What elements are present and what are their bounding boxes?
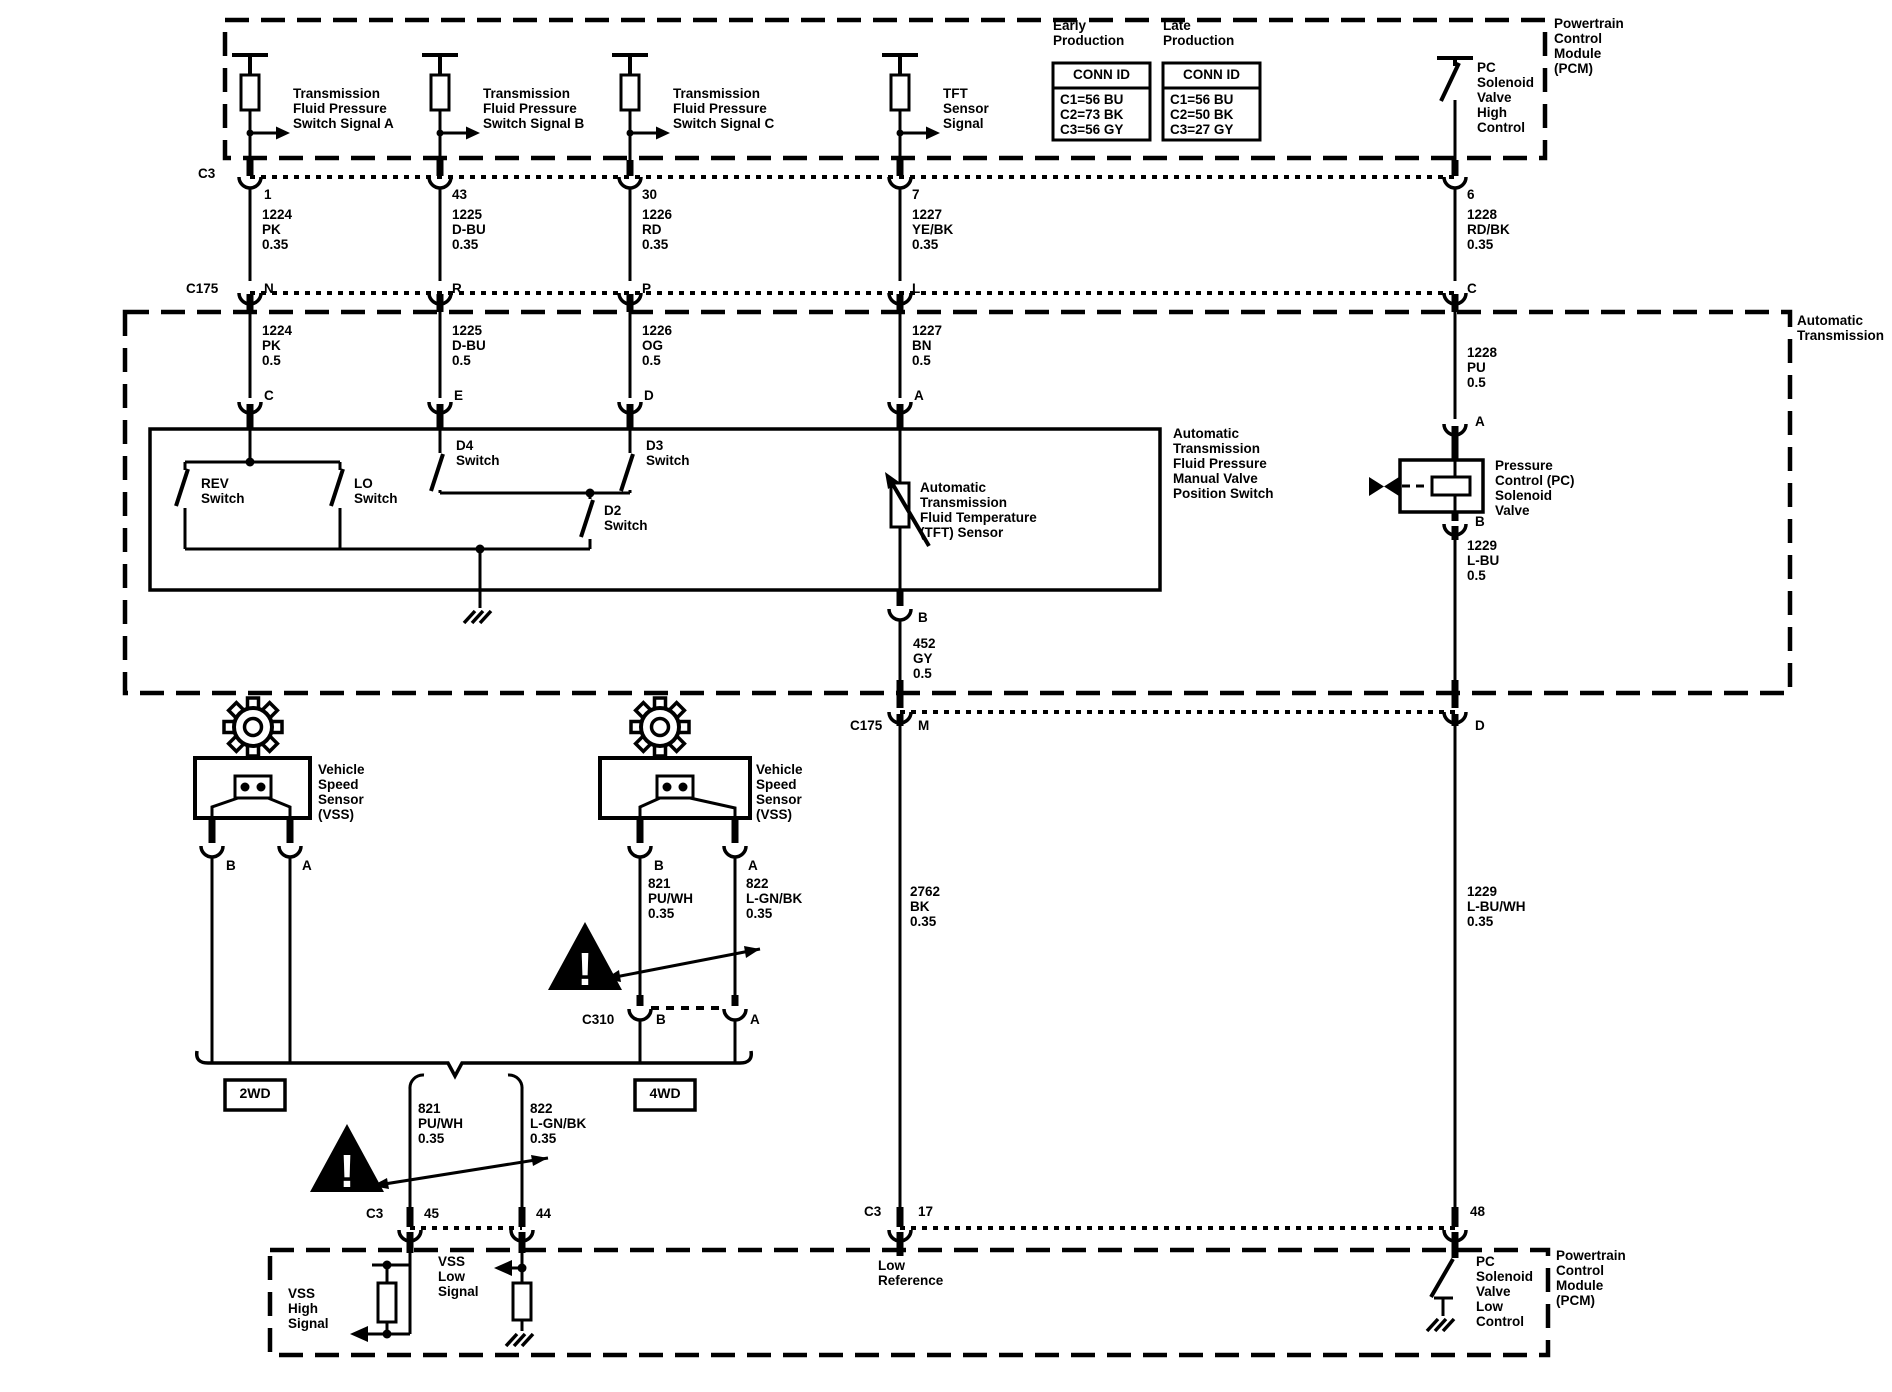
pin-6: 6 xyxy=(1467,187,1475,202)
pin-30: 30 xyxy=(642,187,657,202)
wire-1228-05: 1228 PU 0.5 xyxy=(1467,345,1497,390)
early-production-label: Early Production xyxy=(1053,18,1124,48)
wire-1227-05: 1227 BN 0.5 xyxy=(912,323,942,368)
vss-left-pin-a: A xyxy=(302,858,312,873)
resistor-icon xyxy=(513,1283,531,1320)
pin-l: L xyxy=(912,281,920,296)
automatic-transmission-label: Automatic Transmission xyxy=(1797,313,1884,343)
wire-821-lower: 821 PU/WH 0.35 xyxy=(418,1101,463,1146)
pcm-top-label: Powertrain Control Module (PCM) xyxy=(1554,16,1624,76)
pin-7: 7 xyxy=(912,187,920,202)
pin-44: 44 xyxy=(536,1206,551,1221)
pc-high-switch-blade xyxy=(1441,63,1459,101)
wire-821-upper: 821 PU/WH 0.35 xyxy=(648,876,693,921)
vss-high-signal-label: VSS High Signal xyxy=(288,1286,329,1331)
low-reference-label: Low Reference xyxy=(878,1258,943,1288)
vss-left-pin-b: B xyxy=(226,858,236,873)
pin-m: M xyxy=(918,718,929,733)
component-boxes xyxy=(125,20,1790,1355)
vss-left-label: Vehicle Speed Sensor (VSS) xyxy=(318,762,365,822)
wires xyxy=(185,100,1467,1334)
resistor-icon xyxy=(621,75,639,110)
pin-a-switch: A xyxy=(914,388,924,403)
wire-452: 452 GY 0.5 xyxy=(913,636,936,681)
pin-45: 45 xyxy=(424,1206,439,1221)
pin-r: R xyxy=(452,281,462,296)
switch-blades xyxy=(176,58,1473,1297)
vss-right-pin-b: B xyxy=(654,858,664,873)
pin-1: 1 xyxy=(264,187,272,202)
wire-1226-035: 1226 RD 0.35 xyxy=(642,207,672,252)
pin-n: N xyxy=(264,281,274,296)
solenoid-coil-icon xyxy=(1432,477,1470,495)
gear-icon xyxy=(631,698,689,756)
resistor-icon xyxy=(241,75,259,110)
connector-c175-name: C175 xyxy=(186,281,218,296)
rev-switch-blade xyxy=(176,469,188,506)
2wd-label: 2WD xyxy=(225,1086,285,1101)
d2-switch-blade xyxy=(581,500,593,537)
warning-icon: ! xyxy=(310,1124,384,1197)
d3-switch-label: D3 Switch xyxy=(646,438,690,468)
connector-cups xyxy=(201,177,1466,1241)
wire-2762: 2762 BK 0.35 xyxy=(910,884,940,929)
connector-c175-2-name: C175 xyxy=(850,718,882,733)
warning-exclamation: ! xyxy=(577,943,592,995)
lo-switch-blade xyxy=(331,469,343,506)
vss-coil-icons xyxy=(235,776,693,798)
signal-c-label: Transmission Fluid Pressure Switch Signa… xyxy=(673,86,774,131)
terminal-stubs xyxy=(212,160,1455,1258)
resistor-top-bars xyxy=(232,55,918,75)
wire-1227-035: 1227 YE/BK 0.35 xyxy=(912,207,953,252)
ground-icon xyxy=(464,611,491,623)
vss-low-signal-label: VSS Low Signal xyxy=(438,1254,479,1299)
valve-bowtie-icon xyxy=(1369,477,1399,496)
wire-1229-035: 1229 L-BU/WH 0.35 xyxy=(1467,884,1525,929)
pc-valve-pin-b: B xyxy=(1475,514,1485,529)
wire-822-upper: 822 L-GN/BK 0.35 xyxy=(746,876,802,921)
signal-b-label: Transmission Fluid Pressure Switch Signa… xyxy=(483,86,584,131)
resistor-icon xyxy=(891,75,909,110)
ground-icon xyxy=(506,1334,533,1346)
vss-right-pin-a: A xyxy=(748,858,758,873)
warning-icon: ! xyxy=(548,922,622,995)
pc-low-switch-blade xyxy=(1431,1259,1453,1297)
connector-lines xyxy=(250,177,1455,1228)
pc-solenoid-high-label: PC Solenoid Valve High Control xyxy=(1477,60,1534,135)
gear-icon xyxy=(224,698,282,756)
wiring-diagram: ! ! Transmission Fluid Pressure Switch S… xyxy=(0,0,1892,1392)
pcm-bottom-arrows xyxy=(350,1260,512,1342)
connector-c3-top-name: C3 xyxy=(198,166,215,181)
d4-switch-label: D4 Switch xyxy=(456,438,500,468)
rev-switch-label: REV Switch xyxy=(201,476,245,506)
connector-c3-bottom-right-name: C3 xyxy=(864,1204,881,1219)
late-production-label: Late Production xyxy=(1163,18,1234,48)
wire-1224-035: 1224 PK 0.35 xyxy=(262,207,292,252)
pin-43: 43 xyxy=(452,187,467,202)
wire-1226-05: 1226 OG 0.5 xyxy=(642,323,672,368)
pc-valve-label: Pressure Control (PC) Solenoid Valve xyxy=(1495,458,1574,518)
late-conn-id-header: CONN ID xyxy=(1163,67,1260,82)
d2-switch-label: D2 Switch xyxy=(604,503,648,533)
wire-822-lower: 822 L-GN/BK 0.35 xyxy=(530,1101,586,1146)
pc-solenoid-low-label: PC Solenoid Valve Low Control xyxy=(1476,1254,1533,1329)
ground-icon xyxy=(1427,1319,1454,1331)
d3-switch-blade xyxy=(621,454,633,491)
c310-pin-b: B xyxy=(656,1012,666,1027)
connector-c3-bottom-left-name: C3 xyxy=(366,1206,383,1221)
solid-boxes xyxy=(150,63,1483,1110)
tft-pin-b: B xyxy=(918,610,928,625)
wire-1225-035: 1225 D-BU 0.35 xyxy=(452,207,486,252)
pin-c-switch: C xyxy=(264,388,274,403)
connector-c310-name: C310 xyxy=(582,1012,614,1027)
lo-switch-label: LO Switch xyxy=(354,476,398,506)
d4-switch-blade xyxy=(431,454,443,491)
pcm-top-box xyxy=(225,20,1545,158)
pin-p: P xyxy=(642,281,651,296)
wire-1228-035: 1228 RD/BK 0.35 xyxy=(1467,207,1510,252)
resistor-icon xyxy=(431,75,449,110)
pcm-bottom-label: Powertrain Control Module (PCM) xyxy=(1556,1248,1626,1308)
vss-right-label: Vehicle Speed Sensor (VSS) xyxy=(756,762,803,822)
late-conn-id-rows: C1=56 BU C2=50 BK C3=27 GY xyxy=(1170,92,1233,137)
pin-c-top: C xyxy=(1467,281,1477,296)
warning-exclamation: ! xyxy=(339,1145,354,1197)
wire-1225-05: 1225 D-BU 0.5 xyxy=(452,323,486,368)
4wd-label: 4WD xyxy=(635,1086,695,1101)
early-conn-id-header: CONN ID xyxy=(1053,67,1150,82)
pin-48: 48 xyxy=(1470,1204,1485,1219)
wire-1224-05: 1224 PK 0.5 xyxy=(262,323,292,368)
signal-a-label: Transmission Fluid Pressure Switch Signa… xyxy=(293,86,394,131)
tft-sensor-label: Automatic Transmission Fluid Temperature… xyxy=(920,480,1037,540)
pin-d-switch: D xyxy=(644,388,654,403)
early-conn-id-rows: C1=56 BU C2=73 BK C3=56 GY xyxy=(1060,92,1123,137)
pin-17: 17 xyxy=(918,1204,933,1219)
pin-e-switch: E xyxy=(454,388,463,403)
tft-signal-label: TFT Sensor Signal xyxy=(943,86,989,131)
wire-1229-05: 1229 L-BU 0.5 xyxy=(1467,538,1499,583)
pin-d-c175: D xyxy=(1475,718,1485,733)
manual-valve-position-switch-label: Automatic Transmission Fluid Pressure Ma… xyxy=(1173,426,1274,501)
pc-valve-pin-a: A xyxy=(1475,414,1485,429)
c310-pin-a: A xyxy=(750,1012,760,1027)
resistor-icon xyxy=(378,1283,396,1322)
